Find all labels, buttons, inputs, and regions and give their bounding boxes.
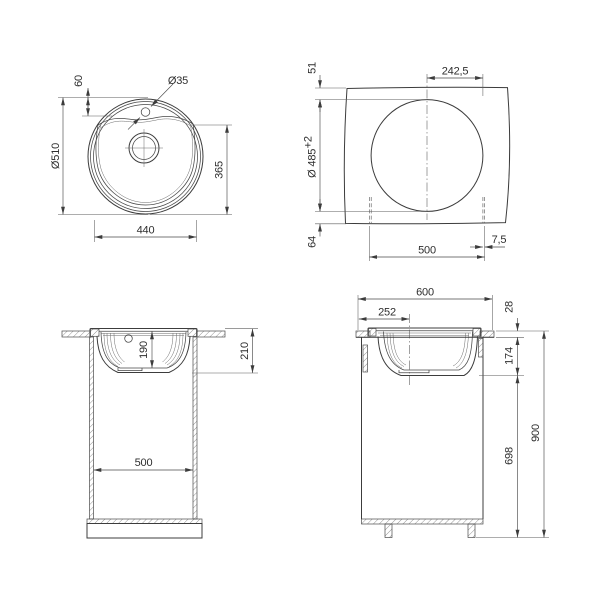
countertop-left — [62, 331, 90, 337]
dim-cabinet-depth: 600 — [416, 287, 434, 299]
dim-tap-offset: 60 — [73, 75, 85, 87]
dim-tap-hole-label: Ø35 — [168, 75, 188, 87]
dim-outer-diameter: Ø510 — [50, 143, 62, 169]
cabinet-bottom — [87, 519, 202, 524]
dim-front-edge-gap: 51 — [307, 62, 319, 74]
front-rail-section — [363, 345, 368, 372]
dim-bowl-below-countertop: 174 — [504, 347, 516, 365]
tap-hole — [141, 108, 150, 117]
dim-countertop-thickness: 28 — [504, 301, 516, 313]
side-section-view: 600 252 28 174 698 900 — [356, 287, 549, 538]
cabinet-leg-front — [385, 524, 392, 538]
cabinet-leg-rear — [468, 524, 475, 538]
dim-side-gap: 7,5 — [492, 234, 507, 246]
dim-bowl-center-offset: 252 — [378, 307, 396, 319]
dim-opening-width: 500 — [418, 245, 436, 257]
cutout-template-view: 51 Ø 485+2 64 242,5 500 7,5 — [303, 62, 510, 261]
dim-overall-height: 900 — [530, 424, 542, 442]
dim-front-to-bottom: 365 — [214, 161, 226, 179]
front-section-view: 190 210 500 — [62, 329, 258, 539]
bowl-edge — [96, 124, 195, 205]
countertop-right — [197, 331, 225, 337]
countertop-right-side — [480, 331, 494, 337]
sink-top-view: Ø35 Ø510 60 365 440 — [50, 75, 232, 242]
dim-rear-edge-gap: 64 — [307, 236, 319, 248]
sink-rim-section — [90, 329, 197, 337]
dim-center-to-edge: 242,5 — [442, 66, 469, 78]
dim-cabinet-width: 500 — [135, 457, 153, 469]
dim-bowl-depth: 190 — [138, 341, 150, 359]
cabinet-wall-right — [193, 337, 197, 519]
dim-under-counter-height: 698 — [504, 447, 516, 465]
technical-drawing-sheet: Ø35 Ø510 60 365 440 51 — [0, 0, 600, 600]
dim-cutout-diameter: Ø 485+2 — [303, 136, 319, 178]
cabinet-plinth — [87, 524, 202, 539]
cabinet-bottom-side — [362, 519, 484, 524]
rear-rail-section — [479, 339, 484, 358]
cabinet-wall-left — [90, 337, 94, 519]
dim-bowl-width: 440 — [137, 225, 155, 237]
sink-dimension-drawing: Ø35 Ø510 60 365 440 51 — [0, 0, 600, 600]
dim-overall-depth: 210 — [239, 342, 251, 360]
